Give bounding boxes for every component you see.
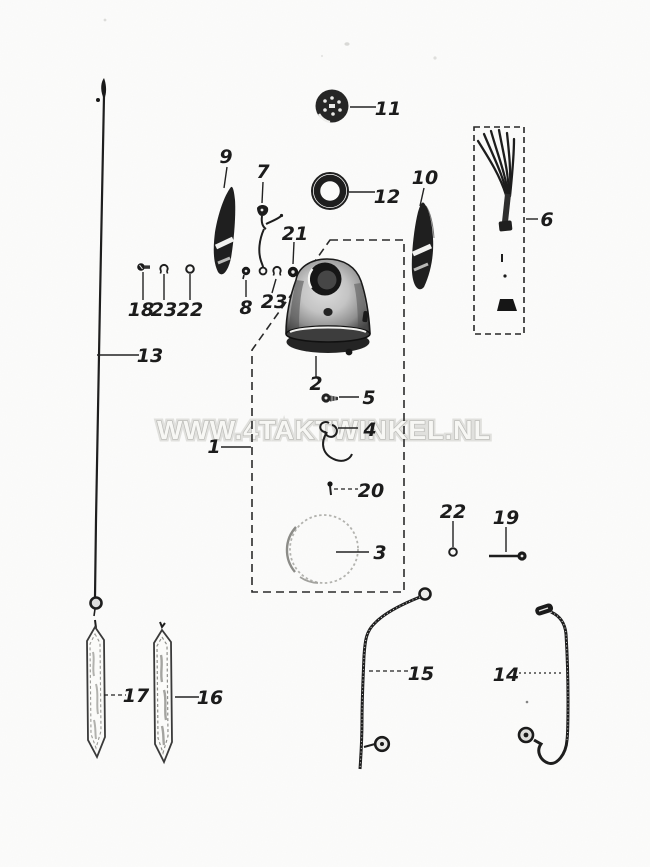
part-label-6: 6 xyxy=(540,209,553,231)
part-11-socket-cap xyxy=(316,90,349,123)
part-label-2: 2 xyxy=(309,373,322,395)
cable-15-eyelet xyxy=(420,589,431,600)
leader-21 xyxy=(293,242,294,264)
part-label-7: 7 xyxy=(256,161,270,183)
part-label-23b: 23 xyxy=(261,291,287,313)
part-label-20: 20 xyxy=(358,480,384,502)
leader-7 xyxy=(262,182,263,203)
part-label-8: 8 xyxy=(239,297,252,319)
harness-sleeve xyxy=(505,194,508,222)
part-label-21: 21 xyxy=(282,223,308,245)
part-label-5: 5 xyxy=(362,387,375,409)
part-label-15: 15 xyxy=(408,663,434,685)
cable-end-fitting xyxy=(91,598,102,609)
harness-connector xyxy=(499,220,513,231)
part-label-9: 9 xyxy=(219,146,232,168)
part-label-22b: 22 xyxy=(440,501,466,523)
part-label-19: 19 xyxy=(493,507,519,529)
bucket-wire-hole xyxy=(323,308,332,316)
part-label-14: 14 xyxy=(493,664,519,686)
parts-diagram: WWW.4TAKTWINKEL.NL WWW.4TAKTWINKEL.NL xyxy=(0,0,650,867)
part-16-stay xyxy=(154,622,172,762)
part-label-4: 4 xyxy=(362,419,376,441)
part-17-stay xyxy=(87,620,105,757)
part-label-11: 11 xyxy=(375,98,401,120)
part-label-22a: 22 xyxy=(177,299,203,321)
part-label-3: 3 xyxy=(373,542,386,564)
part-label-16: 16 xyxy=(197,687,223,709)
part-label-13: 13 xyxy=(137,345,163,367)
part-label-23a: 23 xyxy=(151,299,177,321)
page: WWW.4TAKTWINKEL.NL WWW.4TAKTWINKEL.NL xyxy=(0,0,650,867)
part-2-headlamp-case xyxy=(286,259,370,355)
part-label-1: 1 xyxy=(207,436,220,458)
part-label-10: 10 xyxy=(412,167,438,189)
part-label-17: 17 xyxy=(123,685,150,707)
part-label-12: 12 xyxy=(374,186,400,208)
